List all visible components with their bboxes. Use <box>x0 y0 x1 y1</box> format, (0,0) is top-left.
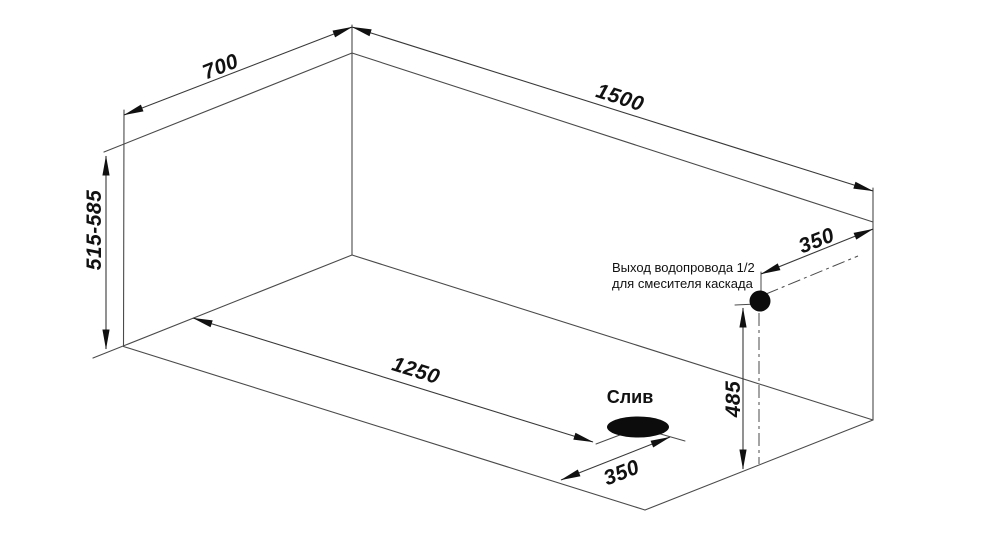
dim-label-width-700: 700 <box>199 50 241 85</box>
dim-line-length-1500 <box>352 27 873 191</box>
dim-label-drain-1250: 1250 <box>389 353 442 389</box>
drain-label: Слив <box>607 387 654 407</box>
center-lines <box>759 256 858 464</box>
dim-label-outlet-350: 350 <box>795 224 837 259</box>
technical-drawing-canvas: 700 1500 515-585 1250 350 485 350 Слив В… <box>0 0 1000 553</box>
dim-label-length-1500: 1500 <box>593 79 646 116</box>
outlet-note-line1: Выход водопровода 1/2 <box>612 260 755 275</box>
dim-label-outlet-485: 485 <box>722 381 745 419</box>
floor-front-left-edge <box>124 347 646 511</box>
tank-dimension-drawing: 700 1500 515-585 1250 350 485 350 Слив В… <box>0 0 1000 553</box>
outlet-diagonal-centerline <box>766 256 858 294</box>
dimension-lines <box>106 27 873 480</box>
dim-line-drain-1250 <box>193 318 593 442</box>
floor-back-left-edge <box>93 255 352 358</box>
drain-length-extension-line <box>657 433 685 441</box>
left-vertical-edge <box>124 110 125 347</box>
rim-right-edge <box>352 53 873 222</box>
tank-outline <box>93 25 873 510</box>
outlet-note-line2: для смесителя каскада <box>612 276 754 291</box>
dim-label-height-515-585: 515-585 <box>83 190 106 271</box>
water-outlet-hole <box>750 291 771 312</box>
drain-hole <box>607 417 669 438</box>
dim-label-drain-350: 350 <box>600 456 642 491</box>
